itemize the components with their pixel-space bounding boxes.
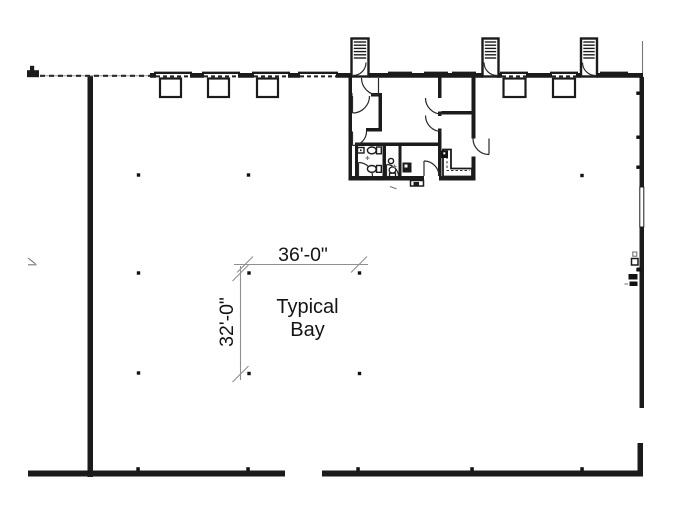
utility-fixture-icon <box>403 163 412 173</box>
dock-bumper <box>504 79 526 98</box>
wall-column-ticks <box>136 92 639 471</box>
floor-plan-page: 36'-0" 32'-0" Typical Bay <box>0 0 680 511</box>
right-wall-window <box>640 187 644 227</box>
dock-door-4 <box>502 76 526 97</box>
right-wall-upper <box>640 77 645 408</box>
misc-marks <box>28 258 37 265</box>
top-left-wall-end <box>27 70 39 77</box>
dock-doors <box>156 76 576 97</box>
fixture-tag <box>633 252 637 256</box>
stair-tower-3 <box>581 39 597 77</box>
wall-tick <box>470 467 474 471</box>
lavatory-icon <box>388 158 393 163</box>
hatch-tick <box>390 187 397 189</box>
bottom-wall-right-segment <box>322 471 643 477</box>
column-dot <box>247 372 250 375</box>
typical-bay-label: Typical Bay <box>276 296 338 341</box>
rear-door-swing <box>424 161 439 176</box>
dock-bumper <box>553 79 575 98</box>
bay-label-line2: Bay <box>290 319 324 341</box>
column-dot <box>137 173 140 176</box>
outlet-box-icon <box>632 259 639 266</box>
column-dot <box>247 173 250 176</box>
wall-tick <box>636 166 639 169</box>
column-grid-dots <box>137 173 584 375</box>
toilet-icon <box>367 147 381 154</box>
counter-sink-dot <box>443 152 445 154</box>
column-dot <box>247 271 250 274</box>
dock-bumper <box>160 79 181 98</box>
sink-drain <box>360 150 362 152</box>
stair-towers <box>352 39 598 77</box>
electrical-panel-icon <box>630 282 638 287</box>
column-dot <box>137 371 140 374</box>
wall-tick <box>580 467 584 471</box>
office-doors <box>424 98 489 176</box>
right-wall-fixtures <box>625 252 642 286</box>
warehouse-door-swing <box>473 139 489 155</box>
wall-tick <box>636 136 639 139</box>
vestibule-door-swing <box>353 96 370 113</box>
top-wall-headers <box>154 72 628 74</box>
restrooms <box>358 147 399 177</box>
bay-depth-dimension-label: 32'-0" <box>216 297 238 347</box>
wall-tick <box>246 467 250 471</box>
plus-mark <box>366 156 370 160</box>
dock-door-5 <box>552 76 576 97</box>
wall-tick <box>356 467 360 471</box>
dock-door-2 <box>204 76 238 97</box>
exterior-walls <box>27 41 644 477</box>
wall-tick <box>636 92 639 95</box>
dock-bumper <box>257 79 278 98</box>
angle-mark <box>28 258 36 264</box>
column-dot <box>358 271 361 274</box>
wall-tick <box>136 467 140 471</box>
toilet-icon <box>367 166 381 173</box>
break-counter <box>442 150 473 177</box>
door-threshold <box>411 181 424 187</box>
dock-door-3 <box>254 76 288 97</box>
junction-box-icon <box>637 268 641 272</box>
dock-door-1 <box>156 76 190 97</box>
top-left-wall-end-cap <box>30 66 34 71</box>
column-dot <box>580 174 583 177</box>
stair-tower-2 <box>483 39 499 77</box>
entry-door-swing <box>362 78 379 95</box>
right-wall-lower <box>638 443 644 477</box>
office-partition-walls <box>349 77 476 181</box>
vestibule-doors <box>353 78 379 146</box>
electrical-panel-icon <box>629 274 638 280</box>
left-wall <box>88 76 94 478</box>
floor-plan-canvas: 36'-0" 32'-0" Typical Bay <box>0 0 680 511</box>
office-suite <box>349 77 490 189</box>
stair-tower-1 <box>352 39 369 77</box>
column-dot <box>137 271 140 274</box>
bottom-wall-left-segment <box>28 471 285 477</box>
bay-label-line1: Typical <box>276 296 338 318</box>
column-dot <box>358 372 361 375</box>
dock-bumper <box>208 79 229 98</box>
bay-width-dimension-label: 36'-0" <box>278 244 328 266</box>
